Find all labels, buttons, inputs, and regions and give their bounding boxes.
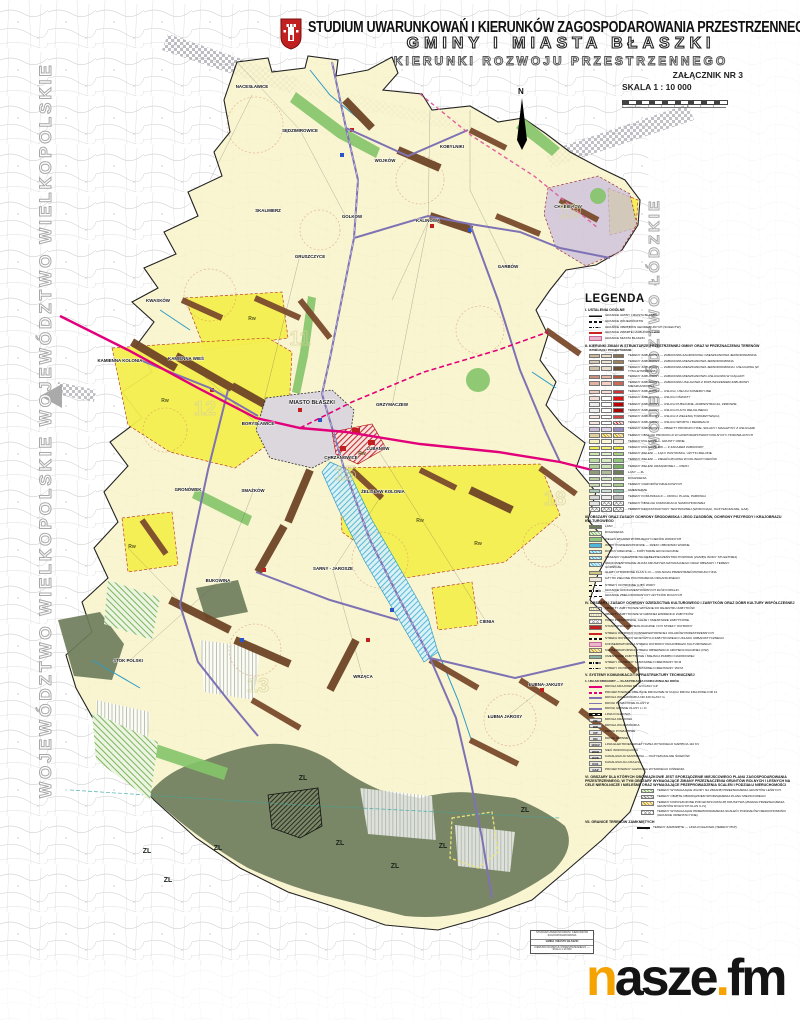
legend-swatch [613, 360, 624, 365]
legend-swatch [613, 477, 624, 482]
legend-item-label: ZIELEŃ ŁĘGOWA W DOLINACH CIEKÓW WODNYCH [605, 537, 681, 541]
legend-swatch [589, 550, 602, 555]
legend-row: TERENY ZABUDOWY — USŁUGI OŚWIATY [589, 396, 797, 401]
legend-swatch [589, 648, 602, 653]
legend-swatch [589, 577, 602, 582]
legend-row: UDOKUMENTOWANE ZŁOŻA KRUSZYWA NATURALNEG… [589, 562, 797, 569]
legend-section-heading: VI. OBSZARY DLA KTÓRYCH OBOWIĄZKOWE JEST… [585, 775, 797, 787]
legend-row: TERENY ZABUDOWY — ZABUDOWA MIESZKANIOWA … [589, 366, 797, 373]
forest-zl-label: ZL [143, 848, 152, 855]
legend-swatch [613, 495, 624, 500]
legend-row: 110kVLINIA ELEKTROENERGETYCZNA WYSOKIEGO… [589, 742, 797, 747]
legend-row: DROGI GMINNE KLASY L I D [589, 707, 797, 711]
legend-swatch [601, 366, 612, 371]
legend-row: DOLINY RZECZNE — KORYTARZE EKOLOGICZNE [589, 550, 797, 555]
village-label: ŁUBNA JAROSY [488, 714, 523, 719]
legend-swatch [589, 668, 602, 669]
legend-swatch [589, 501, 600, 506]
legend-row: OBIEKTY ZABYTKOWE W GMINNEJ EWIDENCJI ZA… [589, 613, 797, 618]
legend-item-label: LASY [605, 525, 613, 529]
svg-text:N: N [518, 87, 524, 96]
legend-row: DWDROGA WOJEWÓDZKA [589, 724, 797, 729]
legend-item-label: WODY POWIERZCHNIOWE — RZEKI I ZBIORNIKI … [605, 543, 690, 547]
legend-row: DROGA KRAJOWA NR 12 KLASY GP [589, 685, 797, 689]
legend-item-label: TERENY WYMAGAJĄCE ZGODY NA ZMIANĘ PRZEZN… [657, 789, 781, 793]
legend-row: TERENY ZABUDOWY — USŁUGI, USŁUGI KOMERCY… [589, 390, 797, 395]
legend-swatch [589, 433, 600, 438]
legend-item-label: STREFY OCHRONY SANITARNEJ CMENTARZY 50 m [605, 661, 681, 665]
legend-row: GRANICE WOJEWÓDZTW [589, 320, 797, 324]
legend-item-label: TERENY ZABUDOWY — ZABUDOWA MIESZKANIOWA … [628, 360, 734, 364]
forest-zl-label: ZL [336, 840, 345, 847]
legend-swatch [641, 789, 654, 794]
village-label: NACESŁAWICE [236, 84, 269, 89]
legend-row: KONSERWATORSKA STREFA OBSERWACJI ARCHEOL… [589, 648, 797, 653]
village-label: GARBÓW [498, 264, 519, 269]
legend-item-label: TERENY ZABUDOWY — USŁUGI PUBLICZNE, ADMI… [628, 402, 737, 406]
stamp-row: STUDIUM UWARUNKOWAŃ I KIERUNKÓW ZAGOSPOD… [531, 931, 593, 940]
legend-row: DROGI POWIATOWE KLASY Z [589, 701, 797, 705]
legend-item-label: TERENY ZABUDOWY — USŁUGI OŚWIATY [628, 396, 690, 400]
legend-swatch [613, 452, 624, 457]
legend-row: WODSIEĆ WODOCIĄGOWA [589, 749, 797, 754]
legend-item-label: TERENY ZABUDOWY — USŁUGI, USŁUGI KOMERCY… [628, 390, 711, 394]
logo-part-fm: fm [727, 949, 785, 1007]
legend-item-label: GRANICE WOJEWÓDZTW [605, 320, 643, 324]
rw-label: Rw [416, 518, 424, 524]
forest-zl-label: ZL [214, 845, 223, 852]
legend-row: PROJEKTOWANE OBEJŚCIE DROGOWE W CIĄGU DR… [589, 691, 797, 695]
document-subtitle: GMINY I MIASTA BŁASZKI [308, 35, 800, 53]
legend-item-label: GRANICE MIASTA BŁASZKI [605, 336, 645, 340]
legend-item-label: TERENY ZIELENI — ZIELEŃ ŁĘGOWA W DOLINAC… [628, 458, 717, 462]
legend-swatch [613, 427, 624, 432]
legend-row: TERENY ZABUDOWY — USŁUGI SPORTU I REKREA… [589, 421, 797, 426]
legend-row: TERENY WYMAGAJĄCE ZGODY NA ZMIANĘ PRZEZN… [641, 789, 797, 794]
rw-label: Rw [161, 398, 169, 404]
legend-swatch [589, 458, 600, 463]
blaszki-crest-icon [280, 18, 302, 50]
legend-item-label: TERENY OGRODÓW DZIAŁKOWYCH [628, 483, 682, 487]
village-label: CHRZANOWICE [324, 455, 357, 460]
legend-row: DGDROGI GMINNE [589, 736, 797, 741]
legend-swatch [589, 381, 600, 386]
legend-swatch [613, 402, 624, 407]
legend-item-label: TERENY ZABUDOWY — ZABUDOWA ZAGRODOWA I M… [628, 354, 757, 358]
legend-swatch [613, 446, 624, 451]
legend-swatch [601, 360, 612, 365]
legend-row: TERENY OBJĘTE OBOWIĄZKIEM SPORZĄDZENIA P… [641, 795, 797, 800]
legend-swatch [589, 427, 600, 432]
legend-row: KOLKANALIZACJA LOKALNA [589, 761, 797, 766]
legend-swatch [589, 625, 602, 630]
legend-row: TERENY ROLNICZE — GRUNTY ORNE [589, 439, 797, 444]
legend-swatch [601, 446, 612, 451]
nasze-fm-logo: nasze.fm [586, 952, 785, 1004]
legend-item-label: TERENY OBSŁUGI PRODUKCJI W GOSPODARSTWAC… [628, 433, 753, 437]
legend-swatch [601, 396, 612, 401]
legend-item-label: PROJEKTOWANY GAZOCIĄG WYSOKIEGO CIŚNIENI… [605, 767, 684, 771]
legend-swatch [589, 390, 600, 395]
legend-row: TERENY ZIELENI URZĄDZONEJ — PARKI [589, 464, 797, 469]
legend-row: KONSERWATORSKA STREFA OCHRONY KRAJOBRAZU… [589, 642, 797, 647]
legend-item-label: TERENY ZABUDOWY — USŁUGI SPORTU I REKREA… [628, 421, 709, 425]
legend-row: GLEBY CHRONIONE KLAS II–III — ROLNICZA P… [589, 571, 797, 576]
legend-swatch [589, 619, 602, 624]
legend-item-label: GRANICE OBRĘBÓW GEODEZYJNYCH (SOŁECTW) [605, 325, 681, 329]
legend-row: STREFY OCHRONY SANITARNEJ CMENTARZY 150 … [589, 666, 797, 670]
legend-swatch [601, 439, 612, 444]
village-label: ŁUBNA-JAKUSY [529, 682, 564, 687]
legend-swatch [601, 495, 612, 500]
legend-swatch [589, 489, 600, 494]
legend-swatch [601, 452, 612, 457]
legend-swatch [613, 507, 624, 512]
legend-row: TERENY WYMAGAJĄCE PRZEPROWADZENIA SCALEŃ… [641, 810, 797, 817]
legend-item-label: TERENY OBSŁUGI KOMUNIKACJI SAMOCHODOWEJ [628, 501, 705, 505]
village-label: KWASKÓW [146, 298, 171, 303]
legend-swatch [589, 402, 600, 407]
grid-number: 15 [334, 463, 356, 485]
village-label: KALINOWA [416, 218, 441, 223]
legend-swatch [641, 801, 654, 806]
legend-swatch [589, 321, 602, 323]
village-label: ŻELISŁAW KOLONIA [361, 489, 405, 494]
village-label: GRZYMACZEW [376, 402, 409, 407]
legend-row: DOLESIENIA [589, 531, 797, 536]
legend-item-label: TERENY ZAMKNIĘTE — LINIA KOLEJOWA (TEREN… [653, 826, 737, 830]
legend-swatch [589, 360, 600, 365]
legend-row: TERENY OGRODÓW DZIAŁKOWYCH [589, 483, 797, 488]
legend-row: LASY — ZL [589, 470, 797, 475]
rw-label: Rw [358, 451, 366, 457]
legend-row: TERENY ROLNICZE Rw — Z ZAKAZEM ZABUDOWY [589, 446, 797, 451]
legend-item-label: GRANICE ZWARTEJ ZABUDOWY WSI [605, 331, 660, 335]
village-label: GRUSZCZYCE [295, 254, 325, 259]
legend-swatch: KOL [589, 761, 602, 766]
legend-section-heading: V. SYSTEMY KOMUNIKACJI I INFRASTRUKTURY … [585, 673, 797, 677]
legend-item-label: DROGA WOJEWÓDZKA [605, 724, 640, 728]
legend-item-label: DOLESIENIA [605, 531, 624, 535]
legend-row: TERENY ZAMKNIĘTE — LINIA KOLEJOWA (TEREN… [637, 826, 797, 830]
legend-swatch [589, 543, 602, 548]
grid-number: 18 [544, 488, 566, 510]
legend-item-label: OBIEKTY ZABYTKOWE W GMINNEJ EWIDENCJI ZA… [605, 613, 693, 617]
legend-row: TERENY KOMUNIKACJI — DROGI, PLACE, PARKI… [589, 495, 797, 500]
legend-swatch [601, 458, 612, 463]
legend-item-label: DOLESIENIA [628, 477, 647, 481]
legend-row: DPDROGI POWIATOWE [589, 730, 797, 735]
legend-swatch [637, 827, 650, 829]
village-label: SARNY - JAROSZE [313, 566, 353, 571]
legend-swatch [589, 336, 602, 341]
legend-row: DKDROGA KRAJOWA [589, 718, 797, 723]
legend-swatch [589, 662, 602, 663]
village-label: STOK POLSKI [113, 658, 143, 663]
legend-item-label: STREFY OCHRONY SANITARNEJ CMENTARZY 150 … [605, 666, 683, 670]
legend-item-label: TERENY ZABUDOWY — OBIEKTY PRODUKCYJNE, S… [628, 427, 755, 431]
legend-item-label: SIEĆ WODOCIĄGOWA [605, 749, 638, 753]
legend-swatch [613, 390, 624, 395]
legend-item-label: GRANICE GMINY I MIASTA BŁASZKI [605, 314, 657, 318]
legend-swatch [641, 810, 654, 815]
legend-swatch: DG [589, 736, 602, 741]
forest-zl-label: ZL [164, 877, 173, 884]
legend-swatch [613, 439, 624, 444]
forest-zl-label: ZL [391, 863, 400, 870]
legend-row: DROGA WOJEWÓDZKA NR 449 KLASY G [589, 696, 797, 700]
legend-swatch [589, 483, 600, 488]
legend-row: STREFY OCHRONY SANITARNEJ CMENTARZY 50 m [589, 661, 797, 665]
legend-swatch [589, 366, 600, 371]
legend-swatch [613, 408, 624, 413]
legend-row: TERENY OBSŁUGI PRODUKCJI W GOSPODARSTWAC… [589, 433, 797, 438]
legend-row: UŻYTKI ZIELONE POCHODZENIA ORGANICZNEGO [589, 577, 797, 582]
legend-item-label: STREFA OCHRONY EKSPOZYCJI ZABYTKOWEGO UK… [605, 637, 724, 641]
legend-swatch [589, 613, 602, 618]
grid-number: 19 [559, 201, 581, 223]
title-stamp: STUDIUM UWARUNKOWAŃ I KIERUNKÓW ZAGOSPOD… [530, 930, 594, 954]
legend-subsection-heading: 1. UKŁAD DROGOWY — KLASYFIKACJA FUNKCJON… [585, 680, 797, 683]
legend-swatch: 110kV [589, 742, 602, 747]
legend-swatch [589, 507, 600, 512]
legend-panel: LEGENDA I. USTALENIA OGÓLNEGRANICE GMINY… [585, 293, 797, 831]
legend-row: GRANICE UDOKUMENTOWANYCH ZŁÓŻ KOPALIN [589, 589, 797, 593]
legend-swatch [589, 556, 602, 561]
legend-swatch [613, 381, 624, 386]
legend-swatch [613, 489, 624, 494]
legend-section-heading: III. OBSZARY ORAZ ZASADY OCHRONY ŚRODOWI… [585, 515, 797, 523]
legend-item-label: TERENY ROLNICZE Rw — Z ZAKAZEM ZABUDOWY [628, 446, 704, 450]
legend-swatch [613, 375, 624, 380]
legend-swatch: GAZ [589, 767, 602, 772]
legend-item-label: TERENY ZIELENI URZĄDZONEJ — PARKI [628, 464, 689, 468]
legend-swatch [613, 396, 624, 401]
legend-swatch: DW [589, 724, 602, 729]
legend-item-label: TERENY DOPUSZCZONE POD EKSPLOATACJĘ KRUS… [657, 801, 795, 808]
legend-swatch [589, 633, 602, 635]
legend-item-label: TERENY WYMAGAJĄCE PRZEPROWADZENIA SCALEŃ… [657, 810, 795, 817]
village-label: SKALMIERZ [255, 208, 281, 213]
legend-swatch [601, 483, 612, 488]
legend-swatch [589, 354, 600, 359]
legend-item-label: TERENY ZABUDOWY — USŁUGI KULTU RELIGIJNE… [628, 408, 708, 412]
legend-body: I. USTALENIA OGÓLNEGRANICE GMINY I MIAST… [585, 308, 797, 830]
legend-row: GRANICE MIASTA BŁASZKI [589, 336, 797, 341]
legend-item-label: LINIA ELEKTROENERGETYCZNA WYSOKIEGO NAPI… [605, 742, 699, 746]
legend-row: LINIA KOLEJOWA [589, 712, 797, 716]
legend-row: TERENY ZABUDOWY — ZABUDOWA ZAGRODOWA I M… [589, 354, 797, 359]
legend-swatch [613, 501, 624, 506]
legend-swatch [601, 477, 612, 482]
legend-swatch [589, 642, 602, 647]
legend-swatch [589, 596, 602, 598]
legend-swatch [589, 531, 602, 536]
scale-ticks [622, 105, 726, 108]
legend-swatch [641, 795, 654, 800]
legend-row: TERENY OBSŁUGI KOMUNIKACJI SAMOCHODOWEJ [589, 501, 797, 506]
legend-swatch: DK [589, 718, 602, 723]
legend-item-label: PROJEKTOWANE OBEJŚCIE DROGOWE W CIĄGU DR… [605, 691, 717, 695]
legend-item-label: CMENTARZE [628, 489, 647, 493]
legend-swatch [589, 692, 602, 694]
legend-swatch [601, 375, 612, 380]
legend-swatch [589, 375, 600, 380]
document-title: STUDIUM UWARUNKOWAŃ I KIERUNKÓW ZAGOSPOD… [308, 18, 800, 36]
legend-item-label: OBSZARY NARAŻONE NA NIEBEZPIECZEŃSTWO PO… [605, 556, 737, 560]
logo-dot: . [716, 949, 727, 1007]
village-label: KAMIENNA WIEŚ [168, 356, 204, 361]
legend-item-label: TERENY KOMUNIKACJI — DROGI, PLACE, PARKI… [628, 495, 706, 499]
legend-item-label: DROGI POWIATOWE [605, 730, 635, 734]
legend-swatch [601, 501, 612, 506]
legend-swatch [589, 495, 600, 500]
legend-item-label: DROGA WOJEWÓDZKA NR 449 KLASY G [605, 696, 665, 700]
legend-row: WODY POWIERZCHNIOWE — RZEKI I ZBIORNIKI … [589, 543, 797, 548]
legend-item-label: PARKI PODWORSKIE, ALEJE I CMENTARZE ZABY… [605, 619, 689, 623]
legend-swatch [589, 590, 602, 591]
legend-swatch [589, 314, 602, 319]
legend-swatch [601, 470, 612, 475]
legend-swatch [589, 686, 602, 688]
legend-row: TERENY ZABUDOWY — ZABUDOWA MIESZKANIOWO-… [589, 375, 797, 380]
legend-item-label: GRANICE UDOKUMENTOWANYCH ZŁÓŻ KOPALIN [605, 589, 679, 593]
village-label: SĘDZIMIROWICE [282, 128, 318, 133]
legend-swatch [589, 477, 600, 482]
village-label: CIENIA [480, 619, 496, 624]
rw-label: Rw [474, 541, 482, 547]
legend-row: STREFA OCHRONY KONSERWATORSKIEJ UKŁADÓW … [589, 631, 797, 635]
village-label: LUBANÓW [367, 446, 391, 451]
legend-swatch [589, 655, 602, 660]
legend-row: CMENTARZE [589, 489, 797, 494]
city-label: MIASTO BŁASZKI [289, 400, 335, 406]
legend-swatch [601, 427, 612, 432]
legend-swatch [601, 421, 612, 426]
village-label: KOBYLNIKI [440, 144, 464, 149]
legend-row: GRANICE ZWARTEJ ZABUDOWY WSI [589, 331, 797, 335]
title-block: STUDIUM UWARUNKOWAŃ I KIERUNKÓW ZAGOSPOD… [280, 18, 792, 80]
legend-swatch [613, 415, 624, 420]
legend-swatch [589, 332, 602, 334]
legend-row: TERENY ZABUDOWY — OBIEKTY PRODUKCYJNE, S… [589, 427, 797, 432]
legend-swatch [613, 483, 624, 488]
legend-row: OBSZARY NARAŻONE NA NIEBEZPIECZEŃSTWO PO… [589, 556, 797, 561]
rw-label: Rw [248, 316, 256, 322]
legend-row: TERENY ZIELENI — ŁĄKI I PASTWISKA, UŻYTK… [589, 452, 797, 457]
legend-row: OBIEKTY ZABYTKOWE WPISANE DO REJESTRU ZA… [589, 607, 797, 612]
legend-swatch [589, 327, 602, 328]
rw-label: Rw [128, 544, 136, 550]
legend-item-label: LINIA KOLEJOWA [605, 712, 631, 716]
legend-swatch [601, 415, 612, 420]
legend-swatch [589, 571, 602, 576]
forest-zl-label: ZL [521, 807, 530, 814]
legend-item-label: TERENY ZABUDOWY — ZABUDOWA USŁUGOWA Z DO… [628, 381, 766, 388]
legend-row: KOSKANALIZACJA SANITARNA — OCZYSZCZALNIE… [589, 755, 797, 760]
legend-swatch [601, 433, 612, 438]
legend-row: TERENY INFRASTRUKTURY TECHNICZNEJ (WODOC… [589, 507, 797, 512]
legend-swatch [589, 713, 602, 715]
legend-row: TERENY ZABUDOWY — ZABUDOWA USŁUGOWA Z DO… [589, 381, 797, 388]
document-subtitle-2: KIERUNKI ROZWOJU PRZESTRZENNEGO [308, 54, 800, 68]
forest-zl-label: ZL [439, 843, 448, 850]
legend-swatch [601, 464, 612, 469]
legend-item-label: STREFA OCHRONY KONSERWATORSKIEJ UKŁADÓW … [605, 631, 714, 635]
grid-number: 13 [247, 675, 269, 697]
logo-part-n: n [586, 949, 615, 1007]
legend-swatch [601, 408, 612, 413]
legend-title: LEGENDA [585, 293, 797, 305]
stamp-row: KIERUNKI ROZWOJU PRZESTRZENNEGO — SKALA … [531, 946, 593, 954]
legend-swatch [613, 458, 624, 463]
legend-swatch [613, 354, 624, 359]
legend-section-heading: VII. GRANICE TERENÓW ZAMKNIĘTYCH [585, 820, 797, 824]
village-label: GOLKÓW [342, 214, 363, 219]
legend-swatch [589, 452, 600, 457]
legend-swatch [601, 354, 612, 359]
legend-swatch [589, 470, 600, 475]
legend-item-label: DROGA KRAJOWA NR 12 KLASY GP [605, 685, 658, 689]
legend-row: CMENTARZE ZABYTKOWE I MIEJSCA PAMIĘCI NA… [589, 655, 797, 660]
region-label-left: WOJEWÓDZTWO WIELKOPOLSKIE WOJEWÓDZTWO WI… [36, 128, 56, 798]
legend-item-label: TERENY INFRASTRUKTURY TECHNICZNEJ (WODOC… [628, 507, 748, 511]
legend-swatch [589, 562, 602, 567]
legend-row: LASY [589, 525, 797, 530]
legend-item-label: STREFY OCHRONNE UJĘĆ WODY [605, 583, 655, 587]
legend-row: GAZPROJEKTOWANY GAZOCIĄG WYSOKIEGO CIŚNI… [589, 767, 797, 772]
map-sheet: { "header": { "line1": "STUDIUM UWARUNKO… [0, 0, 800, 1020]
legend-row: TERENY ZABUDOWY — USŁUGI KULTU RELIGIJNE… [589, 408, 797, 413]
legend-row: GRANICE GMINY I MIASTA BŁASZKI [589, 314, 797, 319]
legend-item-label: TERENY ZABUDOWY — USŁUGI Z ZIELENIĄ TOWA… [628, 415, 719, 419]
legend-swatch: WOD [589, 749, 602, 754]
legend-item-label: DROGI POWIATOWE KLASY Z [605, 701, 649, 705]
legend-row: TERENY ZABUDOWY — USŁUGI PUBLICZNE, ADMI… [589, 402, 797, 407]
legend-item-label: DROGI GMINNE KLASY L I D [605, 707, 646, 711]
legend-swatch: DP [589, 730, 602, 735]
legend-item-label: LASY — ZL [628, 470, 644, 474]
legend-swatch [589, 421, 600, 426]
legend-item-label: DROGA KRAJOWA [605, 718, 632, 722]
legend-item-label: KONSERWATORSKA STREFA OBSERWACJI ARCHEOL… [605, 648, 709, 652]
legend-item-label: TERENY OBJĘTE OBOWIĄZKIEM SPORZĄDZENIA P… [657, 795, 766, 799]
legend-swatch [589, 537, 602, 542]
village-label: WRZĄCA [353, 674, 373, 679]
legend-row: PARKI PODWORSKIE, ALEJE I CMENTARZE ZABY… [589, 619, 797, 624]
legend-swatch [613, 464, 624, 469]
legend-swatch [589, 697, 602, 699]
legend-swatch [589, 439, 600, 444]
legend-item-label: KANALIZACJA SANITARNA — OCZYSZCZALNIE ŚC… [605, 755, 690, 759]
legend-row: DOLESIENIA [589, 477, 797, 482]
legend-swatch [601, 381, 612, 386]
legend-swatch [589, 415, 600, 420]
legend-row: TERENY ZABUDOWY — ZABUDOWA MIESZKANIOWA … [589, 360, 797, 365]
legend-row: STREFY OCHRONNE UJĘĆ WODY [589, 583, 797, 587]
legend-row: STANOWISKA ARCHEOLOGICZNE I ICH STREFY O… [589, 625, 797, 630]
legend-item-label: STANOWISKA ARCHEOLOGICZNE I ICH STREFY O… [605, 625, 693, 629]
legend-swatch [601, 402, 612, 407]
legend-swatch [601, 507, 612, 512]
legend-item-label: DROGI GMINNE [605, 736, 628, 740]
legend-item-label: GRANICE ZMELIOROWANYCH UŻYTKÓW ROLNYCH [605, 594, 682, 598]
legend-item-label: DOLINY RZECZNE — KORYTARZE EKOLOGICZNE [605, 550, 679, 554]
legend-row: TERENY DOPUSZCZONE POD EKSPLOATACJĘ KRUS… [641, 801, 797, 808]
legend-item-label: TERENY ZABUDOWY — ZABUDOWA MIESZKANIOWO-… [628, 375, 744, 379]
legend-item-label: TERENY ZABUDOWY — ZABUDOWA MIESZKANIOWA … [628, 366, 766, 373]
legend-swatch [613, 470, 624, 475]
